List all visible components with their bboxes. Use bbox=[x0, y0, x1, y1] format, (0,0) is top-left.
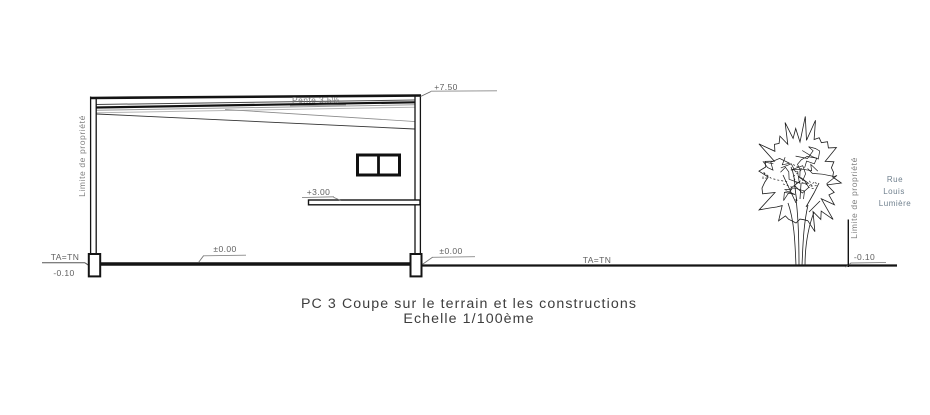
property-limit-left-label: Limite de propriété bbox=[78, 115, 87, 197]
building-walls bbox=[91, 96, 421, 265]
drawing-scale: Echelle 1/100ème bbox=[403, 311, 534, 327]
tree-trunk bbox=[783, 167, 820, 266]
minus-010-left-label: -0.10 bbox=[53, 268, 74, 277]
tree bbox=[759, 116, 841, 266]
level-plus300-label: +3.00 bbox=[307, 187, 331, 196]
roof-slope-label: Pente 3.5% bbox=[292, 96, 340, 105]
ta-tn-mid-label: TA=TN bbox=[583, 255, 612, 264]
property-limit-right-label: Limite de propriété bbox=[850, 157, 859, 239]
floor-slab-plus300 bbox=[302, 197, 420, 205]
minus-010-right-label: -0.10 bbox=[854, 252, 875, 261]
street-name-line1: Rue bbox=[887, 176, 903, 184]
ta-tn-left-label: TA=TN bbox=[51, 252, 80, 261]
section-drawing: Limite de propriété TA=TN -0.10 Pente 3.… bbox=[0, 0, 930, 415]
street-name-line2: Louis bbox=[883, 188, 905, 196]
drawing-title: PC 3 Coupe sur le terrain et les constru… bbox=[301, 296, 637, 312]
level-plus750-label: +7.50 bbox=[434, 82, 458, 91]
street-name-line3: Lumière bbox=[879, 200, 911, 208]
level-zero-right-label: ±0.00 bbox=[439, 246, 462, 255]
level-zero-left-label: ±0.00 bbox=[213, 245, 236, 254]
window bbox=[358, 155, 400, 175]
roof-lines bbox=[90, 96, 421, 130]
section-linework bbox=[0, 0, 930, 415]
tree-crown bbox=[759, 116, 841, 231]
